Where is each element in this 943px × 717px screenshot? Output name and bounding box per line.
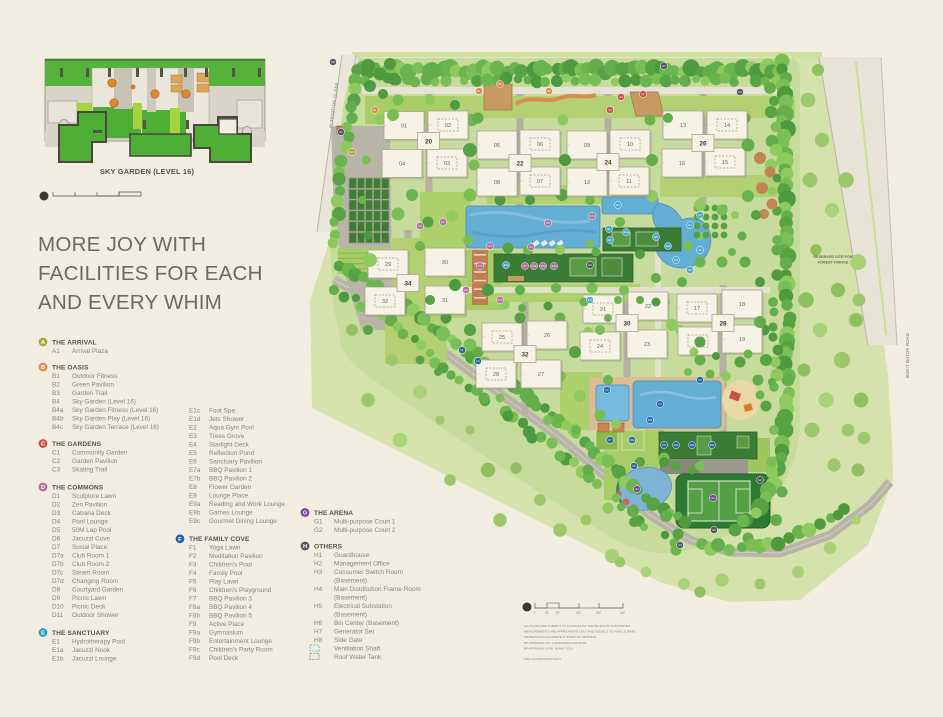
svg-text:BBQ Pavilion 2: BBQ Pavilion 2: [209, 475, 252, 482]
svg-text:H3: H3: [314, 569, 323, 576]
svg-text:Electrical Substation: Electrical Substation: [334, 603, 392, 610]
svg-text:BP APPROVAL NO.: A1678-00003-2: BP APPROVAL NO.: A1678-00003-2018-BP01.: [524, 641, 587, 645]
svg-text:Arrival Plaza: Arrival Plaza: [72, 348, 108, 355]
svg-text:Flower Garden: Flower Garden: [209, 484, 252, 491]
svg-text:Multi-purpose Court 2: Multi-purpose Court 2: [334, 527, 396, 534]
svg-text:E5: E5: [189, 450, 197, 457]
svg-text:Children's Playground: Children's Playground: [209, 587, 272, 594]
svg-text:22: 22: [516, 160, 524, 167]
svg-text:2M: 2M: [545, 612, 548, 615]
svg-text:H8: H8: [331, 60, 335, 64]
svg-text:F9c: F9c: [710, 443, 715, 447]
svg-text:ALL PLANS ARE SUBJECT TO CHANG: ALL PLANS ARE SUBJECT TO CHANGES BY THE …: [524, 624, 632, 628]
svg-text:32: 32: [382, 299, 388, 305]
svg-text:Aqua Gym Pool: Aqua Gym Pool: [209, 424, 254, 431]
svg-text:Active Place: Active Place: [209, 621, 245, 628]
svg-text:5M: 5M: [556, 612, 559, 615]
svg-text:F5: F5: [189, 579, 197, 586]
svg-text:E2: E2: [189, 424, 197, 431]
svg-text:Jacuzzi Nook: Jacuzzi Nook: [72, 647, 111, 654]
svg-text:Sculpture Lawn: Sculpture Lawn: [72, 493, 116, 500]
svg-text:Steam Room: Steam Room: [72, 569, 109, 576]
svg-text:(Basement): (Basement): [334, 577, 367, 584]
svg-text:E2: E2: [616, 203, 620, 207]
svg-text:E9: E9: [608, 238, 612, 242]
svg-text:20: 20: [425, 138, 433, 145]
svg-text:Social Place: Social Place: [72, 544, 108, 551]
svg-text:Changing Room: Changing Room: [72, 578, 118, 585]
svg-text:D7c: D7c: [52, 569, 64, 576]
svg-text:B1: B1: [373, 108, 377, 112]
svg-text:D2: D2: [441, 220, 445, 224]
svg-text:24: 24: [597, 344, 603, 350]
svg-text:B4b: B4b: [52, 415, 64, 422]
svg-text:H1: H1: [314, 552, 323, 559]
svg-text:C2: C2: [52, 458, 61, 465]
svg-text:G1: G1: [314, 518, 323, 525]
svg-text:G1: G1: [711, 496, 715, 500]
svg-text:28: 28: [719, 320, 727, 327]
svg-text:Hydrotherapy Pool: Hydrotherapy Pool: [72, 638, 125, 645]
svg-text:AND EVERY WHIM: AND EVERY WHIM: [38, 291, 222, 314]
svg-text:INFORMATION ACCURATE AT POINT: INFORMATION ACCURATE AT POINT OF PRINTIN…: [524, 635, 597, 639]
svg-text:A1: A1: [52, 348, 60, 355]
svg-text:Sky Garden (Level 16): Sky Garden (Level 16): [72, 398, 136, 405]
svg-text:Jacuzzi Cove: Jacuzzi Cove: [72, 535, 110, 542]
svg-text:D8: D8: [52, 586, 61, 593]
svg-text:OTHERS: OTHERS: [314, 543, 343, 550]
svg-text:H3: H3: [588, 263, 592, 267]
svg-text:Picnic Deck: Picnic Deck: [72, 603, 106, 610]
svg-text:F3: F3: [189, 562, 197, 569]
svg-text:20M: 20M: [596, 612, 601, 615]
svg-text:B4a: B4a: [52, 407, 64, 414]
svg-text:BBQ Pavilion 1: BBQ Pavilion 1: [209, 467, 252, 474]
svg-text:D6: D6: [590, 214, 594, 218]
svg-text:G: G: [303, 511, 307, 517]
svg-text:13: 13: [680, 123, 686, 129]
svg-text:A1: A1: [350, 150, 354, 154]
svg-text:29: 29: [385, 262, 391, 268]
svg-text:SKY GARDEN (LEVEL 16): SKY GARDEN (LEVEL 16): [100, 167, 195, 176]
svg-text:Play Lawn: Play Lawn: [209, 579, 239, 586]
svg-text:Generator Set: Generator Set: [334, 628, 374, 635]
svg-text:H: H: [303, 544, 307, 550]
svg-text:D4: D4: [52, 518, 61, 525]
svg-text:D10: D10: [498, 298, 503, 302]
svg-text:Sanctuary Pavilion: Sanctuary Pavilion: [209, 458, 262, 465]
svg-text:F: F: [178, 537, 182, 543]
svg-text:E7a: E7a: [189, 467, 201, 474]
svg-text:F9a: F9a: [674, 443, 679, 447]
svg-text:11: 11: [626, 179, 632, 185]
svg-text:Meditation Pavilion: Meditation Pavilion: [209, 553, 263, 560]
svg-text:E1d: E1d: [189, 416, 201, 423]
svg-text:Courtyard Garden: Courtyard Garden: [72, 586, 124, 593]
svg-text:B3: B3: [52, 390, 60, 397]
svg-text:E3: E3: [698, 213, 702, 217]
svg-text:D: D: [41, 485, 45, 491]
svg-text:22: 22: [645, 304, 651, 310]
svg-text:F9b: F9b: [189, 638, 200, 645]
svg-text:H5: H5: [712, 528, 716, 532]
svg-text:G2: G2: [635, 487, 639, 491]
svg-text:12: 12: [584, 180, 590, 186]
svg-text:MORE JOY WITH: MORE JOY WITH: [38, 233, 206, 256]
svg-text:14: 14: [724, 123, 730, 129]
svg-text:Reading and Work Lounge: Reading and Work Lounge: [209, 501, 285, 508]
svg-text:BP APPROVAL DATE: 08 MAY 2020.: BP APPROVAL DATE: 08 MAY 2020.: [524, 646, 574, 650]
svg-text:Pool Lounge: Pool Lounge: [72, 518, 108, 525]
svg-text:E: E: [41, 631, 45, 637]
svg-text:Lounge Place: Lounge Place: [209, 492, 249, 499]
svg-text:30: 30: [623, 320, 631, 327]
svg-text:Club Room 2: Club Room 2: [72, 561, 110, 568]
svg-text:THE FAMILY COVE: THE FAMILY COVE: [189, 536, 250, 543]
svg-text:Main Distribution Frame Room: Main Distribution Frame Room: [334, 586, 421, 593]
svg-text:THE SANCTUARY: THE SANCTUARY: [52, 630, 110, 637]
svg-text:Garden Pavilion: Garden Pavilion: [72, 458, 118, 465]
svg-text:G2: G2: [314, 527, 323, 534]
svg-text:Outdoor Fitness: Outdoor Fitness: [72, 373, 117, 380]
svg-text:B4c: B4c: [52, 424, 64, 431]
svg-text:B4: B4: [52, 398, 60, 405]
svg-text:E8: E8: [189, 484, 197, 491]
svg-text:Starlight Deck: Starlight Deck: [209, 441, 250, 448]
svg-text:25: 25: [499, 335, 505, 341]
svg-text:Foot Spa: Foot Spa: [209, 407, 235, 414]
svg-text:F9d: F9d: [648, 418, 653, 422]
svg-text:Multi-purpose Court 1: Multi-purpose Court 1: [334, 518, 396, 525]
svg-text:E1c: E1c: [674, 258, 679, 262]
svg-text:Club Room 1: Club Room 1: [72, 552, 110, 559]
svg-text:H7: H7: [314, 628, 323, 635]
svg-text:D7b: D7b: [541, 264, 546, 268]
svg-text:Roof Water Tank: Roof Water Tank: [334, 654, 382, 661]
svg-text:C2: C2: [641, 92, 645, 96]
svg-text:RESERVED SITE FOR: RESERVED SITE FOR: [813, 255, 853, 259]
svg-text:D7a: D7a: [532, 264, 537, 268]
svg-text:Children's Party Room: Children's Party Room: [209, 647, 273, 654]
svg-text:F8a: F8a: [630, 438, 635, 442]
svg-text:Picnic Lawn: Picnic Lawn: [72, 595, 107, 602]
svg-text:Gourmet Dining Lounge: Gourmet Dining Lounge: [209, 518, 277, 525]
svg-text:19: 19: [739, 337, 745, 343]
svg-text:D7: D7: [523, 264, 527, 268]
svg-text:C3: C3: [52, 466, 61, 473]
svg-text:F6: F6: [189, 587, 197, 594]
svg-text:THE ARENA: THE ARENA: [314, 510, 353, 517]
svg-text:BBQ Pavilion 3: BBQ Pavilion 3: [209, 596, 252, 603]
svg-text:10M: 10M: [576, 612, 581, 615]
svg-text:17: 17: [694, 306, 700, 312]
svg-text:THE OASIS: THE OASIS: [52, 364, 89, 371]
svg-text:D7: D7: [52, 544, 61, 551]
svg-text:06: 06: [537, 142, 543, 148]
svg-text:50M Lap Pool: 50M Lap Pool: [72, 527, 111, 534]
svg-text:E9c: E9c: [189, 518, 201, 525]
svg-text:BBQ Pavilion 4: BBQ Pavilion 4: [209, 604, 252, 611]
svg-text:05: 05: [494, 143, 500, 149]
svg-text:26: 26: [544, 333, 550, 339]
svg-text:21: 21: [600, 307, 606, 313]
svg-text:FACILITIES FOR EACH: FACILITIES FOR EACH: [38, 262, 263, 285]
svg-text:THE GARDENS: THE GARDENS: [52, 441, 102, 448]
svg-text:Side Gate: Side Gate: [334, 637, 363, 644]
svg-text:E1: E1: [607, 227, 611, 231]
svg-text:30: 30: [442, 260, 448, 266]
svg-text:Guardhouse: Guardhouse: [334, 552, 370, 559]
svg-text:BBQ Pavilion 5: BBQ Pavilion 5: [209, 613, 252, 620]
svg-text:26: 26: [699, 140, 707, 147]
svg-text:D8: D8: [478, 264, 482, 268]
svg-text:F9a: F9a: [189, 630, 200, 637]
svg-text:D5: D5: [546, 221, 550, 225]
svg-text:FOR ILLUSTRATION ONLY.: FOR ILLUSTRATION ONLY.: [524, 657, 562, 661]
svg-text:Trees Grove: Trees Grove: [209, 433, 245, 440]
svg-text:H4: H4: [678, 543, 682, 547]
svg-text:E5: E5: [654, 235, 658, 239]
svg-text:Sky Garden Play (Level 16): Sky Garden Play (Level 16): [72, 415, 150, 422]
svg-text:E8: E8: [688, 268, 692, 272]
svg-text:D2: D2: [52, 501, 61, 508]
svg-text:H8: H8: [314, 637, 323, 644]
svg-text:D3: D3: [52, 510, 61, 517]
svg-text:Children's Pool: Children's Pool: [209, 562, 252, 569]
svg-text:23: 23: [644, 342, 650, 348]
svg-text:Cabana Deck: Cabana Deck: [72, 510, 112, 517]
svg-text:Garden Trail: Garden Trail: [72, 390, 107, 397]
svg-text:32: 32: [521, 351, 529, 358]
svg-text:THE ARRIVAL: THE ARRIVAL: [52, 339, 97, 346]
svg-text:C3: C3: [608, 108, 612, 112]
svg-text:F2: F2: [189, 553, 197, 560]
svg-text:Jacuzzi Lounge: Jacuzzi Lounge: [72, 655, 117, 662]
svg-text:C: C: [41, 442, 45, 448]
svg-text:B1: B1: [477, 89, 481, 93]
svg-text:10: 10: [627, 142, 633, 148]
svg-text:02: 02: [445, 123, 451, 129]
svg-text:H4: H4: [314, 586, 323, 593]
svg-text:H6: H6: [738, 90, 742, 94]
svg-text:E9: E9: [189, 492, 197, 499]
svg-text:E7b: E7b: [588, 298, 593, 302]
svg-text:H7: H7: [662, 64, 666, 68]
svg-text:E4: E4: [189, 441, 197, 448]
svg-text:E6: E6: [189, 458, 197, 465]
svg-text:C1: C1: [619, 95, 623, 99]
svg-text:07: 07: [537, 179, 543, 185]
svg-text:F8a: F8a: [189, 604, 200, 611]
svg-text:Gymnasium: Gymnasium: [209, 630, 243, 637]
svg-text:E1d: E1d: [666, 244, 671, 248]
svg-text:H1: H1: [339, 130, 343, 134]
svg-text:E9a: E9a: [189, 501, 201, 508]
svg-text:Management Office: Management Office: [334, 560, 390, 567]
svg-text:B2: B2: [52, 381, 60, 388]
svg-text:34: 34: [404, 280, 412, 287]
svg-text:D1: D1: [52, 493, 61, 500]
svg-text:E7b: E7b: [189, 475, 201, 482]
svg-text:Zen Pavilion: Zen Pavilion: [72, 501, 108, 508]
svg-text:Community Garden: Community Garden: [72, 449, 128, 456]
svg-text:08: 08: [494, 180, 500, 186]
svg-text:E1c: E1c: [189, 407, 201, 414]
svg-text:H2: H2: [314, 560, 323, 567]
svg-text:E1a: E1a: [52, 647, 64, 654]
svg-text:D4: D4: [529, 245, 533, 249]
svg-text:03: 03: [444, 161, 450, 167]
svg-text:(Basement): (Basement): [334, 611, 367, 618]
svg-text:E6: E6: [698, 248, 702, 252]
svg-text:E7a: E7a: [504, 263, 509, 267]
svg-text:24: 24: [604, 159, 612, 166]
svg-text:01: 01: [401, 124, 407, 130]
svg-text:F1: F1: [189, 545, 197, 552]
svg-text:D7b: D7b: [52, 561, 64, 568]
svg-text:MEASUREMENTS ARE APPROXIMATE O: MEASUREMENTS ARE APPROXIMATE ONLY AND SU…: [524, 630, 636, 634]
svg-text:Yoga Lawn: Yoga Lawn: [209, 545, 241, 552]
svg-text:D1: D1: [418, 224, 422, 228]
svg-text:F9b: F9b: [690, 443, 695, 447]
svg-text:15: 15: [722, 160, 728, 166]
svg-text:0: 0: [534, 612, 536, 615]
svg-text:H5: H5: [314, 603, 323, 610]
svg-text:F7: F7: [189, 596, 197, 603]
svg-text:D7d: D7d: [52, 578, 64, 585]
svg-text:D6: D6: [52, 535, 61, 542]
svg-text:B2: B2: [498, 82, 502, 86]
svg-text:D10: D10: [52, 603, 64, 610]
svg-text:D9: D9: [464, 288, 468, 292]
svg-text:Games Lounge: Games Lounge: [209, 509, 253, 516]
svg-text:B: B: [41, 365, 45, 371]
svg-text:BUKIT BATOK ROAD: BUKIT BATOK ROAD: [905, 333, 910, 378]
svg-text:Jets Shower: Jets Shower: [209, 416, 245, 423]
svg-text:F9c: F9c: [189, 647, 200, 654]
svg-text:B1: B1: [52, 373, 60, 380]
svg-text:18: 18: [739, 302, 745, 308]
svg-text:Consumer Switch Room: Consumer Switch Room: [334, 569, 403, 576]
svg-text:27: 27: [538, 372, 544, 378]
svg-text:FOREST FRINGE: FOREST FRINGE: [818, 261, 849, 265]
svg-text:D9: D9: [52, 595, 61, 602]
svg-text:Green Pavilion: Green Pavilion: [72, 381, 114, 388]
svg-text:Sky Garden Terrace (Level 16): Sky Garden Terrace (Level 16): [72, 424, 159, 431]
svg-text:Bin Center (Basement): Bin Center (Basement): [334, 620, 399, 627]
svg-text:E1b: E1b: [52, 655, 64, 662]
svg-text:A: A: [41, 340, 45, 346]
svg-text:D5: D5: [52, 527, 61, 534]
svg-text:E1: E1: [52, 638, 60, 645]
svg-text:D7c: D7c: [552, 264, 557, 268]
svg-text:H6: H6: [314, 620, 323, 627]
svg-text:THE COMMONS: THE COMMONS: [52, 484, 104, 491]
svg-text:28: 28: [493, 372, 499, 378]
svg-text:Family Pool: Family Pool: [209, 570, 242, 577]
svg-text:Entertainment Lounge: Entertainment Lounge: [209, 638, 272, 645]
svg-text:E3: E3: [189, 433, 197, 440]
svg-text:04: 04: [399, 162, 405, 168]
svg-text:F9: F9: [189, 621, 197, 628]
svg-text:D11: D11: [52, 612, 64, 619]
svg-text:Skating Trail: Skating Trail: [72, 466, 107, 473]
svg-text:C1: C1: [52, 449, 61, 456]
svg-text:30M: 30M: [620, 612, 625, 615]
svg-text:31: 31: [442, 298, 448, 304]
svg-text:Pool Deck: Pool Deck: [209, 655, 239, 662]
svg-text:Sky Garden Fitness (Level 16): Sky Garden Fitness (Level 16): [72, 407, 158, 414]
svg-text:16: 16: [679, 161, 685, 167]
svg-text:Outdoor Shower: Outdoor Shower: [72, 612, 119, 619]
svg-text:F8b: F8b: [189, 613, 200, 620]
svg-text:Ventilation Shaft: Ventilation Shaft: [334, 645, 380, 652]
svg-text:D3: D3: [488, 244, 492, 248]
svg-text:09: 09: [584, 143, 590, 149]
svg-text:E4: E4: [688, 223, 692, 227]
svg-text:B3: B3: [547, 89, 551, 93]
svg-text:(Basement): (Basement): [334, 594, 367, 601]
svg-text:E9b: E9b: [189, 509, 201, 516]
svg-text:F4: F4: [189, 570, 197, 577]
svg-text:H2: H2: [758, 478, 762, 482]
svg-text:D7a: D7a: [52, 552, 64, 559]
svg-text:E1a: E1a: [624, 230, 629, 234]
svg-text:Reflection Pond: Reflection Pond: [209, 450, 255, 457]
svg-text:F9d: F9d: [189, 655, 200, 662]
